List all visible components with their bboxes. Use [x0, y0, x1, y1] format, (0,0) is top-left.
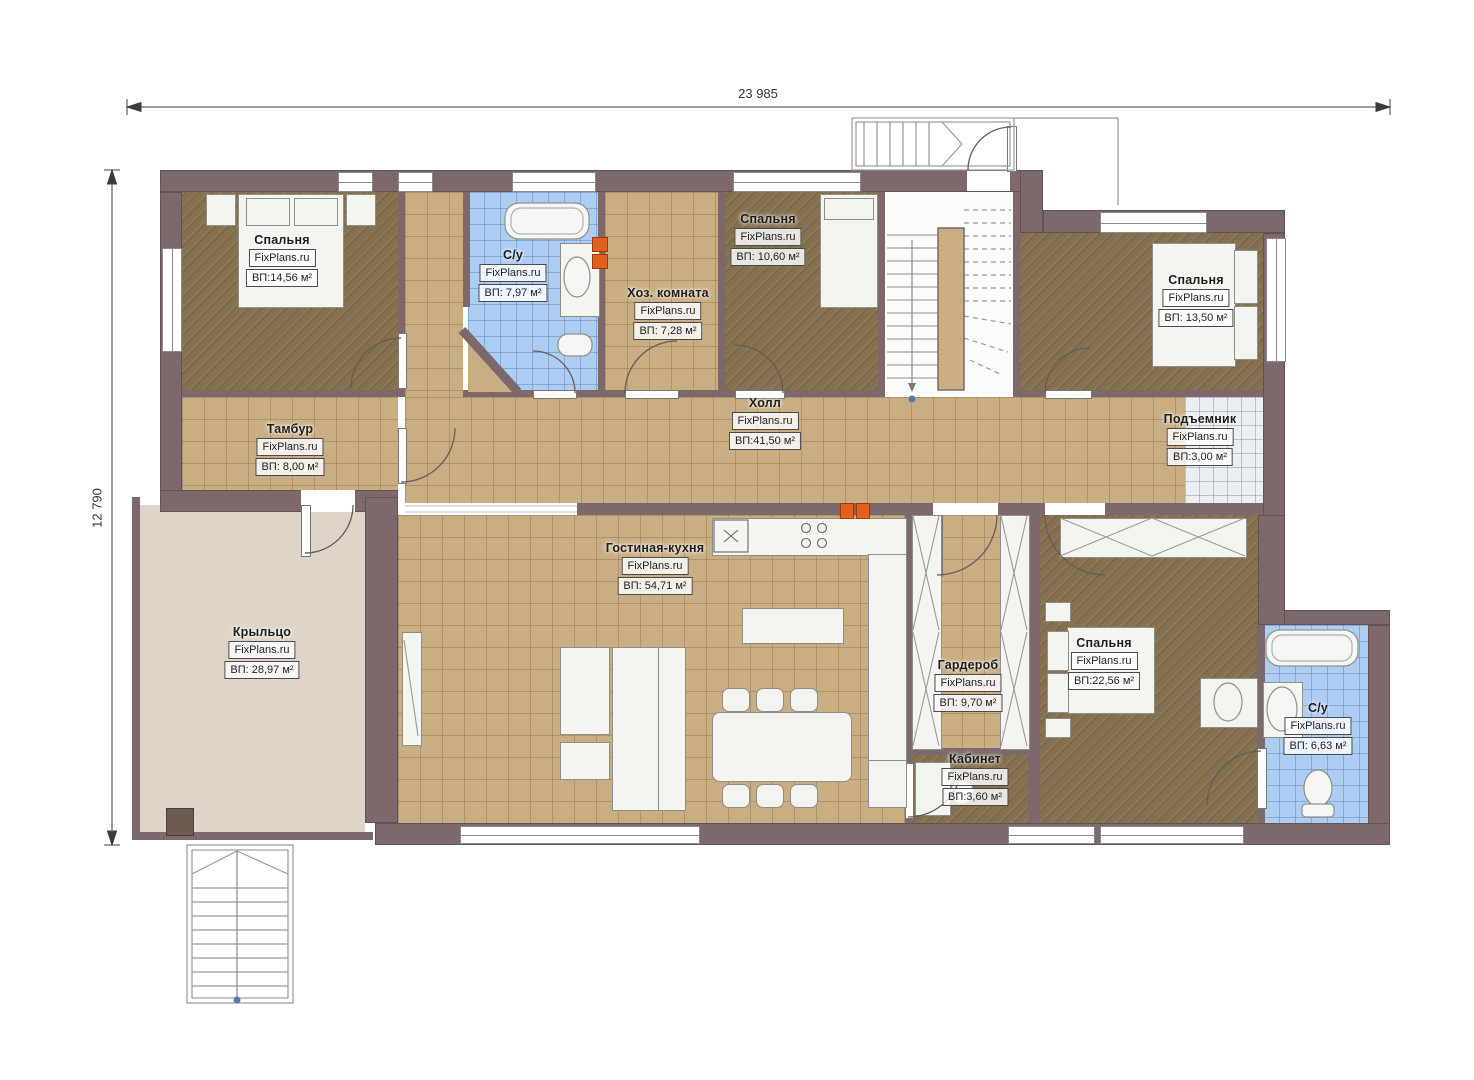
room-area: ВП: 7,28 м²: [633, 322, 702, 340]
room-label-bath-2: С/у FixPlans.ru ВП: 6,63 м²: [1283, 701, 1352, 755]
floor-plan: 23 985 12 790 Спальня FixPlans.ru ВП:14,…: [0, 0, 1474, 1080]
room-label-hall: Холл FixPlans.ru ВП:41,50 м²: [729, 396, 801, 450]
wall-segment: [160, 170, 1043, 192]
kitchen-island: [742, 608, 844, 644]
room-floor-corridor: [405, 192, 463, 403]
room-floor-wardrobe: [940, 515, 1000, 748]
wall-segment: [1258, 515, 1285, 625]
watermark: FixPlans.ru: [479, 264, 546, 282]
wall-segment: [463, 192, 470, 307]
room-area: ВП:14,56 м²: [246, 269, 318, 287]
watermark: FixPlans.ru: [1162, 289, 1229, 307]
window: [398, 172, 433, 192]
room-label-living: Гостиная-кухня FixPlans.ru ВП: 54,71 м²: [606, 541, 705, 595]
entrance-door-opening: [967, 171, 1010, 191]
room-area: ВП: 7,97 м²: [478, 284, 547, 302]
door-bath-1: [533, 390, 577, 399]
watermark: FixPlans.ru: [734, 228, 801, 246]
nightstand: [206, 194, 236, 226]
dimension-width: 23 985: [738, 86, 778, 101]
porch-wall: [132, 497, 140, 840]
room-area: ВП: 54,71 м²: [617, 577, 692, 595]
room-area: ВП:3,60 м²: [942, 788, 1008, 806]
room-label-utility: Хоз. комната FixPlans.ru ВП: 7,28 м²: [627, 286, 709, 340]
wall-segment: [677, 390, 735, 397]
radiator: [856, 503, 870, 519]
room-label-lift: Подъемник FixPlans.ru ВП:3,00 м²: [1164, 412, 1237, 466]
watermark: FixPlans.ru: [248, 249, 315, 267]
room-area: ВП: 6,63 м²: [1283, 737, 1352, 755]
chair: [756, 688, 784, 712]
door-opening-bedroom-4: [1045, 503, 1105, 515]
closet: [912, 515, 942, 750]
room-label-wardrobe: Гардероб FixPlans.ru ВП: 9,70 м²: [933, 658, 1002, 712]
wall-segment: [463, 390, 533, 397]
door-bath-2: [1257, 748, 1267, 809]
room-area: ВП: 13,50 м²: [1158, 309, 1233, 327]
wall-segment: [1020, 170, 1043, 233]
porch-stairs: [187, 845, 293, 1004]
radiator: [592, 254, 608, 269]
door-bedroom-3: [1045, 390, 1092, 399]
room-label-bedroom-4: Спальня FixPlans.ru ВП:22,56 м²: [1068, 636, 1140, 690]
watermark: FixPlans.ru: [941, 768, 1008, 786]
door-bedroom-1: [398, 333, 407, 389]
room-label-bedroom-3: Спальня FixPlans.ru ВП: 13,50 м²: [1158, 273, 1233, 327]
door-tambour-hall: [398, 428, 407, 484]
window: [162, 248, 182, 352]
chair: [756, 784, 784, 808]
wall-segment: [1257, 807, 1265, 823]
window: [1008, 826, 1095, 844]
opening-hall-living: [405, 503, 577, 515]
watermark: FixPlans.ru: [934, 674, 1001, 692]
pillow: [1047, 631, 1069, 671]
pillow: [824, 198, 874, 220]
watermark: FixPlans.ru: [634, 302, 701, 320]
window: [1266, 238, 1286, 362]
wall-segment: [1090, 390, 1263, 397]
room-area: ВП:22,56 м²: [1068, 672, 1140, 690]
porch-column: [166, 808, 194, 836]
door-utility: [625, 390, 679, 399]
room-label-bath-1: С/у FixPlans.ru ВП: 7,97 м²: [478, 248, 547, 302]
sofa-back: [658, 647, 686, 811]
window: [338, 172, 373, 192]
closet: [1000, 515, 1030, 750]
watermark: FixPlans.ru: [1284, 717, 1351, 735]
window: [1100, 826, 1244, 844]
room-area: ВП: 9,70 м²: [933, 694, 1002, 712]
wall-segment: [160, 490, 398, 512]
window: [1100, 212, 1207, 233]
nightstand: [346, 194, 376, 226]
kitchen-counter: [712, 518, 907, 556]
wall-segment: [998, 503, 1045, 515]
chair: [722, 688, 750, 712]
room-label-study: Кабинет FixPlans.ru ВП:3,60 м²: [941, 752, 1008, 806]
entrance-door-leaf: [1007, 126, 1017, 172]
window: [733, 172, 861, 192]
dimension-height: 12 790: [90, 488, 105, 528]
radiator: [592, 237, 608, 252]
wall-segment: [1013, 192, 1020, 397]
wall-segment: [365, 497, 398, 823]
room-floor-hall: [405, 397, 1263, 503]
pillow: [246, 198, 290, 226]
room-area: ВП: 8,00 м²: [255, 458, 324, 476]
side-table: [560, 742, 610, 780]
room-label-porch: Крыльцо FixPlans.ru ВП: 28,97 м²: [224, 625, 299, 679]
fridge: [868, 760, 907, 808]
pillow: [1047, 673, 1069, 713]
watermark: FixPlans.ru: [731, 412, 798, 430]
watermark: FixPlans.ru: [228, 641, 295, 659]
window: [460, 826, 700, 844]
pillow: [1234, 306, 1258, 360]
watermark: FixPlans.ru: [256, 438, 323, 456]
wall-segment: [1105, 503, 1263, 515]
wardrobe-cabinet: [1060, 518, 1247, 558]
watermark: FixPlans.ru: [1166, 428, 1233, 446]
pillow: [294, 198, 338, 226]
room-label-bedroom-1: Спальня FixPlans.ru ВП:14,56 м²: [246, 233, 318, 287]
watermark: FixPlans.ru: [621, 557, 688, 575]
vanity: [1200, 678, 1258, 728]
room-label-bedroom-2: Спальня FixPlans.ru ВП: 10,60 м²: [730, 212, 805, 266]
armchair: [560, 647, 610, 735]
nightstand: [1045, 718, 1071, 738]
wall-segment: [160, 192, 182, 512]
chair: [790, 688, 818, 712]
door-tambour-porch: [301, 505, 311, 557]
door-opening-wardrobe: [933, 503, 998, 515]
dining-table: [712, 712, 852, 782]
wall-segment: [575, 390, 625, 397]
wall-segment: [718, 192, 725, 390]
wall-segment: [1020, 390, 1045, 397]
room-floor-stairwell: [885, 192, 1013, 403]
chair: [790, 784, 818, 808]
tv-bench: [402, 632, 422, 746]
room-area: ВП:3,00 м²: [1167, 448, 1233, 466]
nightstand: [1045, 602, 1071, 622]
room-area: ВП:41,50 м²: [729, 432, 801, 450]
wall-segment: [878, 192, 885, 390]
pillow: [1234, 250, 1258, 304]
wall-segment: [1368, 625, 1390, 845]
room-area: ВП: 10,60 м²: [730, 248, 805, 266]
chair: [722, 784, 750, 808]
watermark: FixPlans.ru: [1070, 652, 1137, 670]
wall-segment: [182, 390, 405, 397]
room-area: ВП: 28,97 м²: [224, 661, 299, 679]
sofa: [612, 647, 662, 811]
window: [512, 172, 596, 192]
radiator: [840, 503, 854, 519]
room-label-tambour: Тамбур FixPlans.ru ВП: 8,00 м²: [255, 422, 324, 476]
wall-segment: [577, 503, 933, 515]
